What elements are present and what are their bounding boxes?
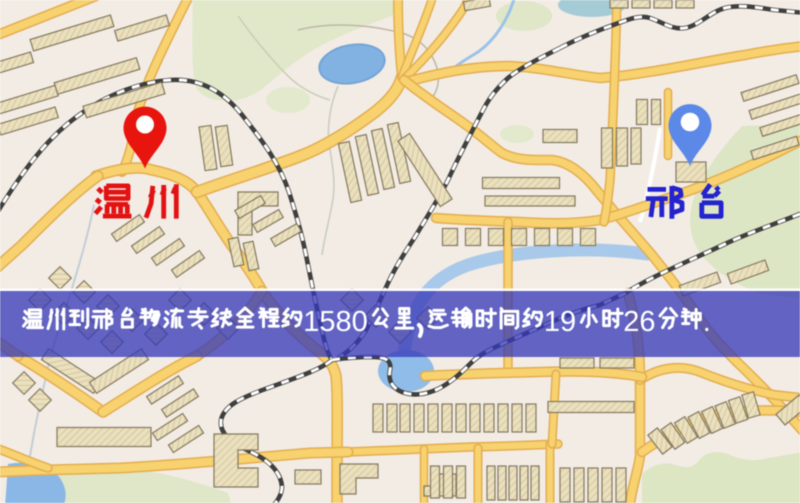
svg-text:.: .: [703, 306, 711, 338]
svg-text:1580: 1580: [303, 306, 368, 338]
svg-text:26: 26: [623, 306, 655, 338]
svg-text:19: 19: [544, 306, 576, 338]
